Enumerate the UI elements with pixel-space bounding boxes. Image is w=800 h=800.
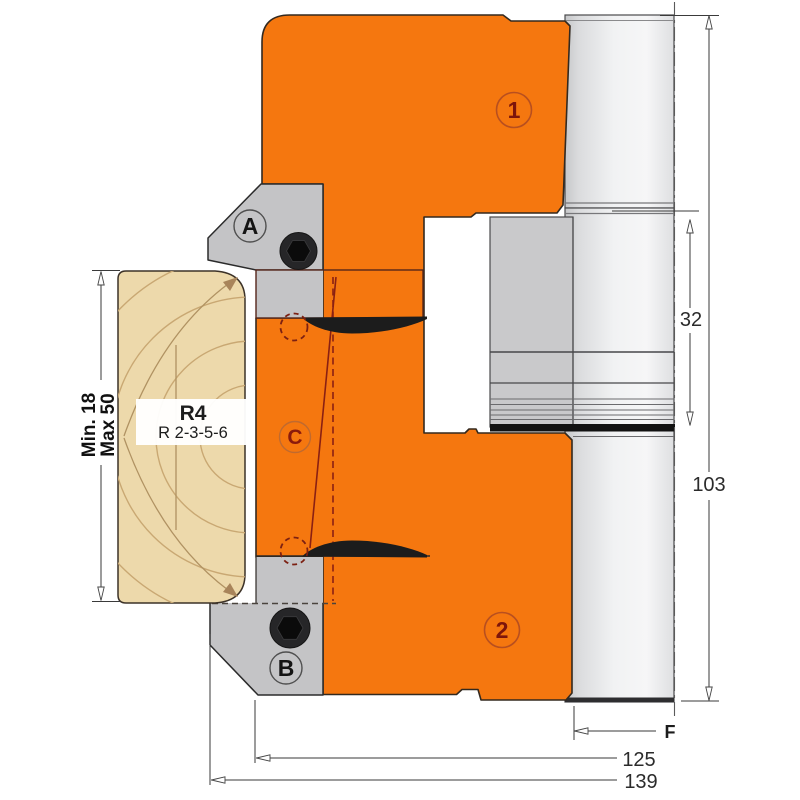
- cutter-head-technical-drawing: R4 R 2-3-5-6 A B C 1 2 Min. 18 Max 50 32: [0, 0, 800, 800]
- upper-clamp-wedge: [256, 270, 323, 318]
- dim-125-label: 125: [622, 749, 655, 771]
- arrow-up-icon: [706, 16, 712, 30]
- lower-clamp-wedge: [256, 557, 323, 603]
- bore-column: [490, 217, 573, 427]
- spacer-ring-black: [490, 424, 675, 432]
- arrow-left-icon: [575, 728, 589, 734]
- radius-label: R4: [180, 402, 207, 425]
- callout-1-label: 1: [508, 97, 521, 123]
- dim-32-label: 32: [680, 309, 702, 331]
- hub-bottom-edge: [565, 698, 674, 703]
- hex-screw-upper: [280, 233, 317, 270]
- arrow-up-icon: [687, 220, 693, 234]
- callout-c-label: C: [287, 426, 302, 449]
- hub-lower-section: [565, 208, 674, 702]
- radius-options-label: R 2-3-5-6: [158, 424, 228, 442]
- dim-139-label: 139: [624, 771, 657, 793]
- arrow-left-icon: [257, 755, 271, 761]
- hub-top-section: [565, 15, 674, 208]
- dim-103-label: 103: [692, 474, 725, 496]
- callout-2-label: 2: [496, 617, 509, 643]
- arrow-up-icon: [98, 272, 104, 286]
- dim-wood-min-label: Min. 18: [79, 393, 100, 457]
- callout-b-label: B: [278, 655, 295, 681]
- callout-a-label: A: [242, 213, 259, 239]
- dim-wood-max-label: Max 50: [98, 393, 119, 456]
- arrow-down-icon: [98, 587, 104, 601]
- arrow-down-icon: [706, 687, 712, 701]
- arrow-left-icon: [212, 777, 226, 783]
- dim-f-label: F: [665, 722, 676, 742]
- arrow-down-icon: [687, 412, 693, 426]
- hex-screw-lower: [270, 608, 310, 648]
